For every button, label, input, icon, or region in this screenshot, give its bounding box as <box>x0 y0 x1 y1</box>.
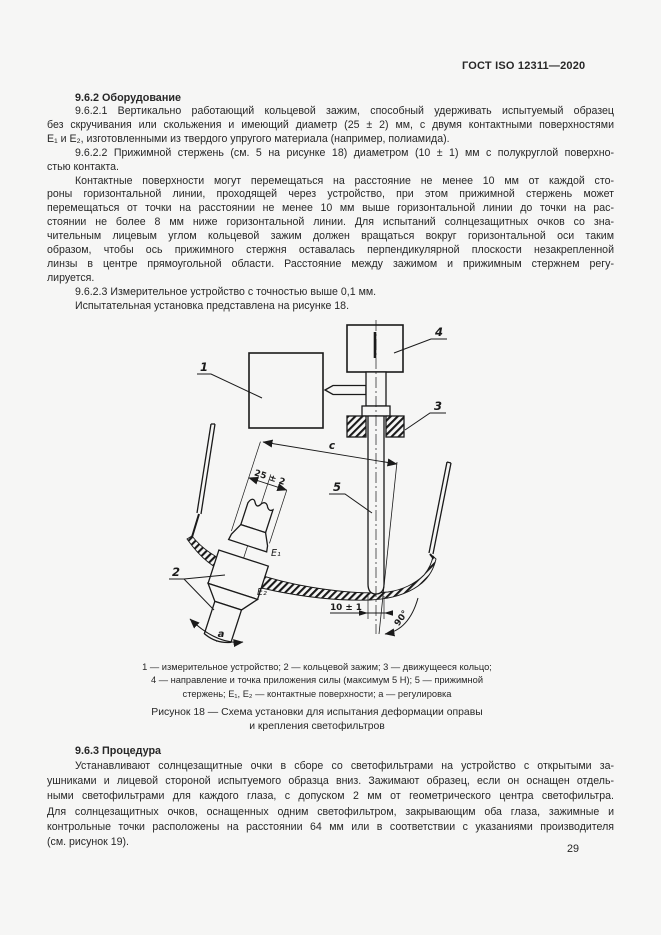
text-line: (см. рисунок 19). <box>47 835 614 850</box>
text-line: образом, чтобы ось прижимного стержня ос… <box>47 244 614 258</box>
callout-4: 4 <box>434 325 443 339</box>
text-line: ными светофильтрами для каждого глаза, с… <box>47 789 614 804</box>
text-line: стоянии не более 8 мм ниже горизонтально… <box>47 216 614 230</box>
section-heading-9-6-3: 9.6.3 Процедура <box>47 744 614 758</box>
text-line: стью контакта. <box>47 161 614 175</box>
text-line: линзы в центре прямоугольной области. Ра… <box>47 258 614 272</box>
paragraph-procedure: Устанавливают солнцезащитные очки в сбор… <box>47 759 614 850</box>
callout-1: 1 <box>200 360 208 374</box>
figure-legend: 1 — измерительное устройство; 2 — кольце… <box>47 661 587 701</box>
section-heading-9-6-2: 9.6.2 Оборудование <box>47 91 614 105</box>
text-line: E₁ и E₂, изготовленными из твердого упру… <box>47 133 614 147</box>
text-line: 9.6.2.3 Измерительное устройство с точно… <box>47 286 614 300</box>
measurement-device-box <box>249 353 323 428</box>
ring-clamp: 25 ± 2 <box>192 440 304 650</box>
text-line: стержень; E₁, E₂ — контактные поверхност… <box>47 688 587 701</box>
device-connector <box>325 386 366 395</box>
angle-90deg-label: 90° <box>393 609 411 628</box>
text-line: Контактные поверхности могут перемещатьс… <box>47 175 614 189</box>
text-line: 9.6.2.1 Вертикально работающий кольцевой… <box>47 105 614 119</box>
text-line: чительным лицевым углом кольцевой зажим … <box>47 230 614 244</box>
contact-surface-e1-label: E₁ <box>271 548 281 559</box>
text-line: перемещаться от точки на расстоянии не м… <box>47 202 614 216</box>
callout-3: 3 <box>434 399 442 413</box>
adjustment-label: a <box>218 629 225 640</box>
paragraph-contact-surfaces: Контактные поверхности могут перемещатьс… <box>47 175 614 286</box>
paragraph-9-6-2-2: 9.6.2.2 Прижимной стержень (см. 5 на рис… <box>47 147 614 175</box>
angle-90deg: 90° <box>385 598 418 634</box>
text-line: лируется. <box>47 272 614 286</box>
text-line: 9.6.2.2 Прижимной стержень (см. 5 на рис… <box>47 147 614 161</box>
figure-caption: Рисунок 18 — Схема установки для испытан… <box>47 706 587 735</box>
text-line: контрольные точки расположены на расстоя… <box>47 820 614 835</box>
paragraph-9-6-2-3: 9.6.2.3 Измерительное устройство с точно… <box>47 286 614 300</box>
text-line: Для солнцезащитных очков, оснащенных одн… <box>47 805 614 820</box>
text-line: 1 — измерительное устройство; 2 — кольце… <box>47 661 587 674</box>
text-line: Устанавливают солнцезащитные очки в сбор… <box>47 759 614 774</box>
contact-surface-e2-label: E₂ <box>257 587 267 598</box>
text-line: Рисунок 18 — Схема установки для испытан… <box>47 706 587 720</box>
document-page: { "doc": { "header": "ГОСТ ISO 12311—202… <box>0 0 661 935</box>
figure-18-diagram: 25 ± 2 c 10 ± 1 90° a <box>140 312 520 654</box>
text-line: 4 — направление и точка приложения силы … <box>47 674 587 687</box>
callout-5: 5 <box>333 480 341 494</box>
text-line: без скручивания или скольжения и имеющий… <box>47 119 614 133</box>
text-line: и крепления светофильтров <box>47 720 587 734</box>
page-number: 29 <box>567 843 579 855</box>
dimension-10mm-label: 10 ± 1 <box>330 603 362 613</box>
dimension-c-label: c <box>329 440 336 452</box>
text-line: ушниками и лицевой стороной испытуемого … <box>47 774 614 789</box>
page-header-standard-number: ГОСТ ISO 12311—2020 <box>462 60 585 72</box>
callout-2: 2 <box>172 565 180 579</box>
text-line: роны горизонтальной линии, проходящей че… <box>47 188 614 202</box>
paragraph-9-6-2-1: 9.6.2.1 Вертикально работающий кольцевой… <box>47 105 614 147</box>
